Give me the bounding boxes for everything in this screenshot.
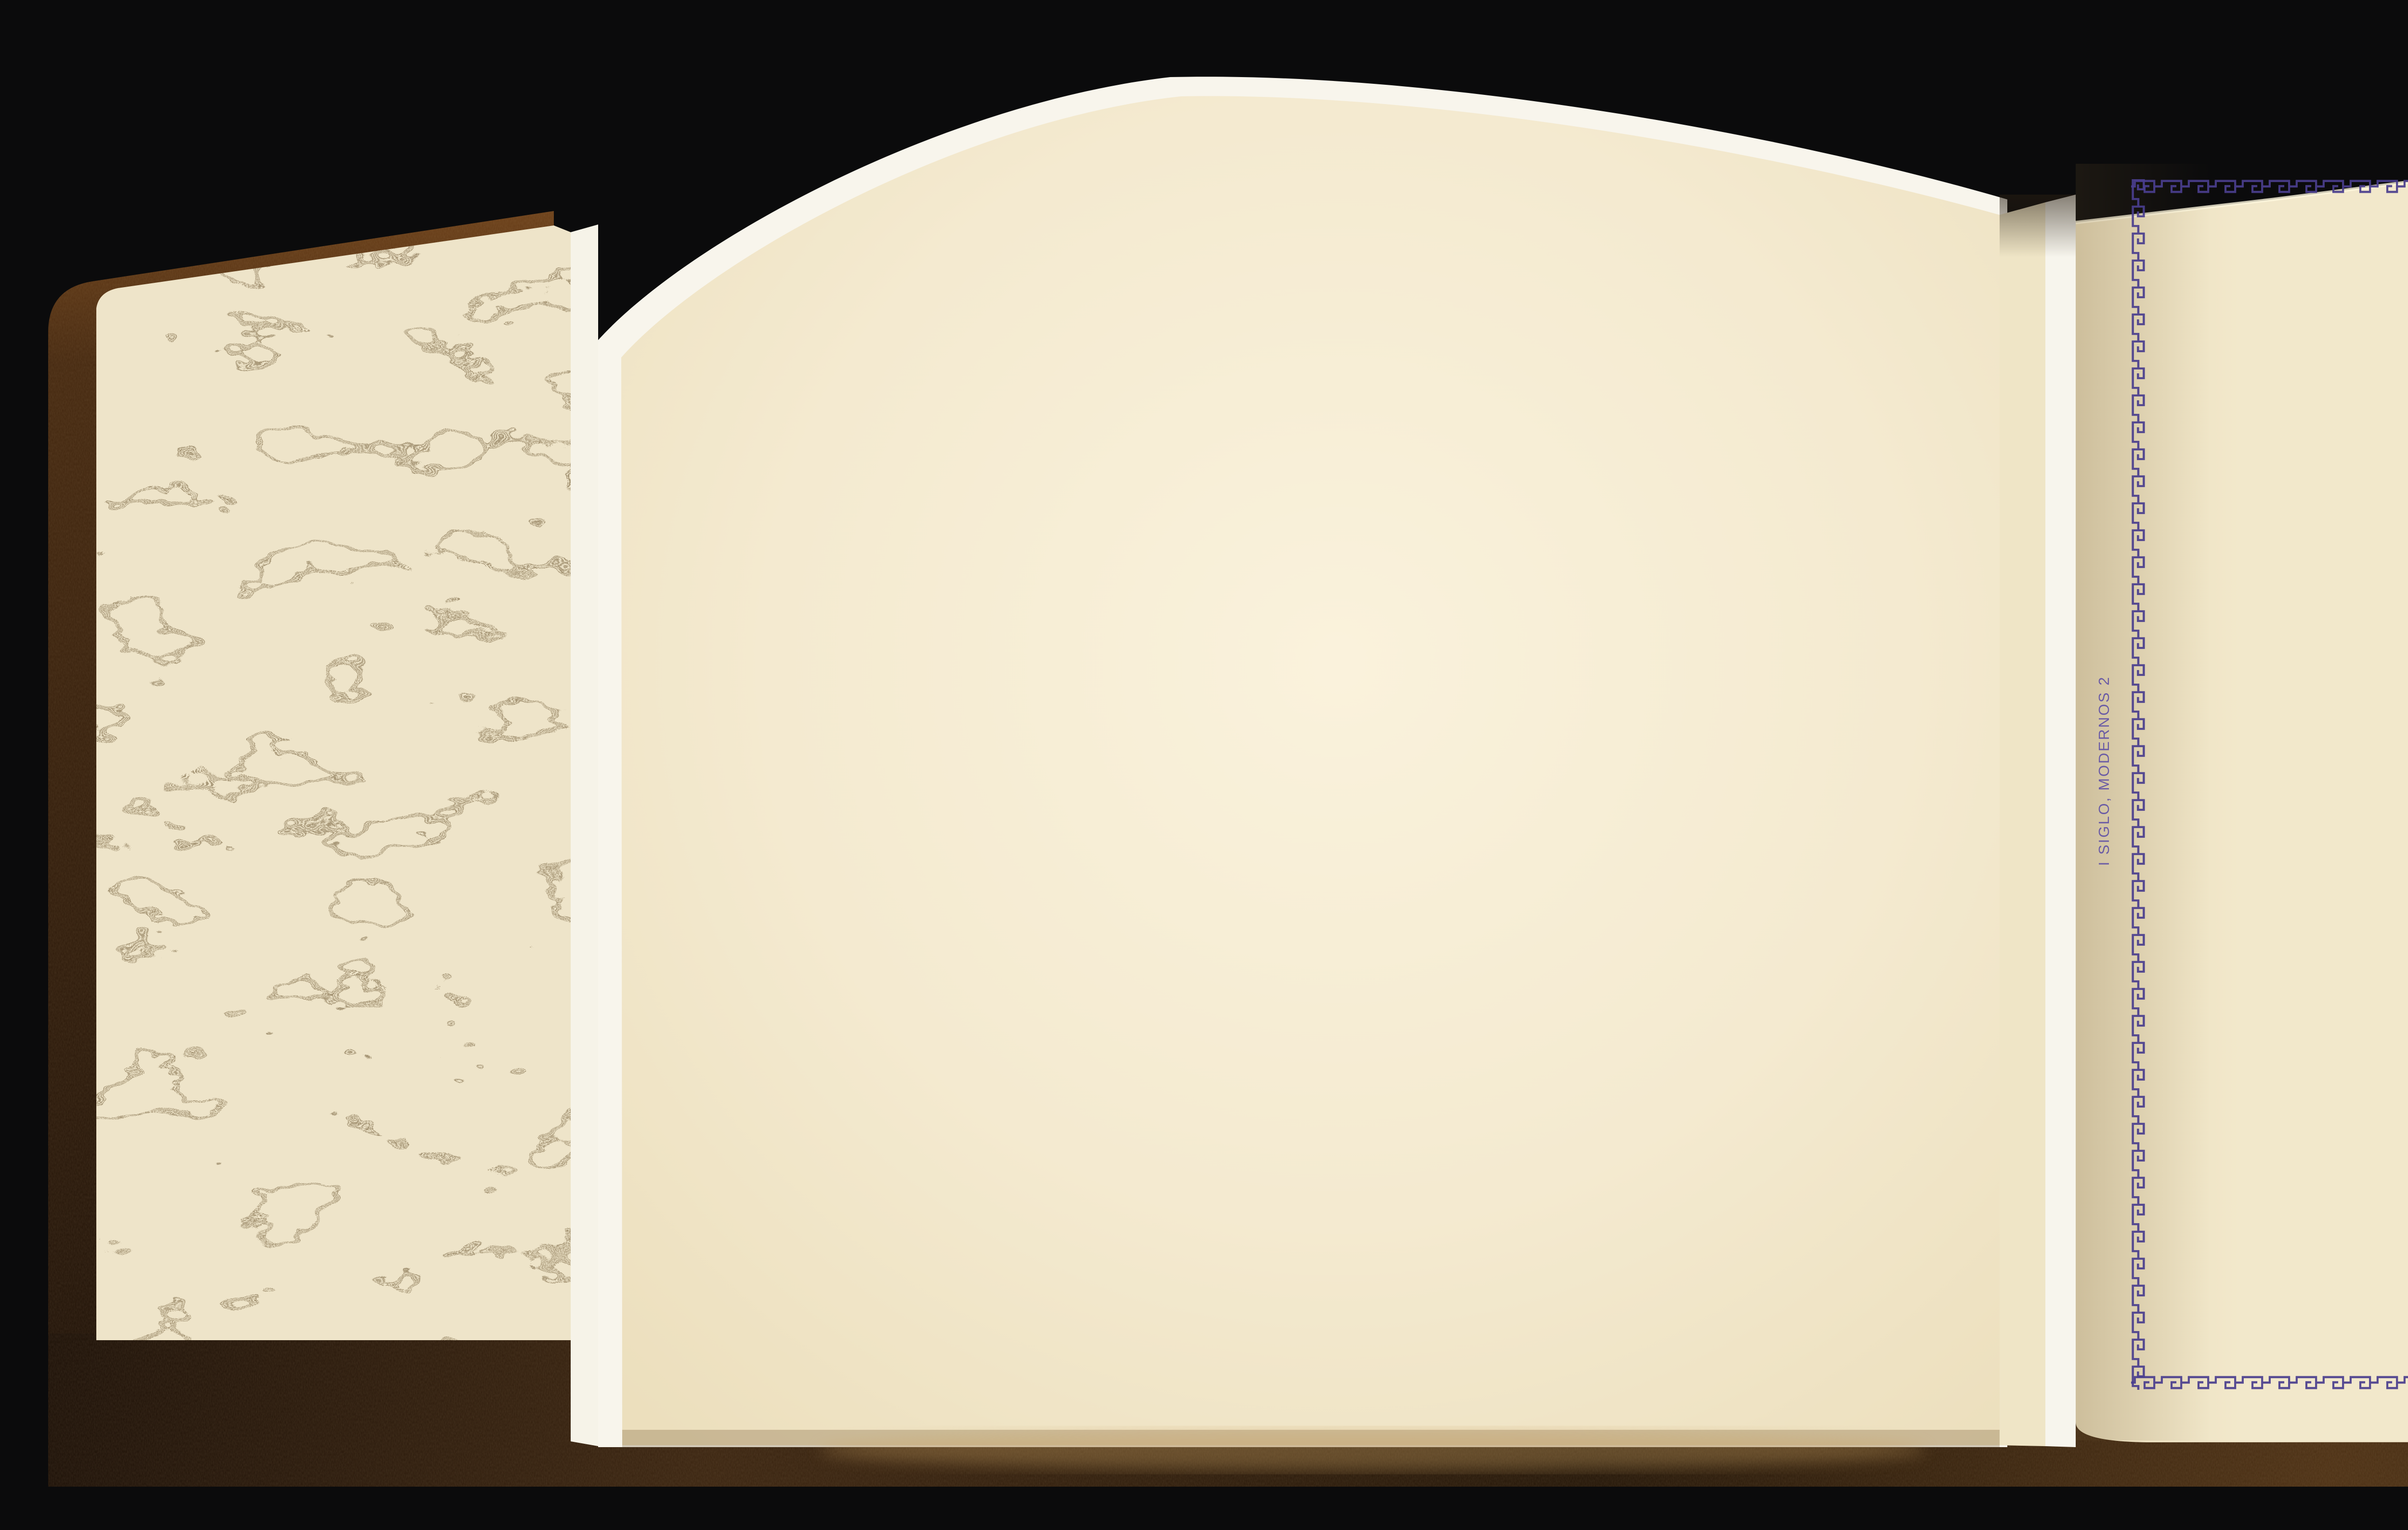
photo-of-open-stamp-album: ESPAÑA 1897, Cifra. Impuesto de guerra. … [0,0,2408,1530]
album-scene [0,0,2408,1530]
margin-series-note: I SIGLO, MODERNOS 2 [2095,665,2117,877]
hinge-top-shadow [2000,195,2076,257]
frame-border-top-left [2131,179,2408,194]
page-edge-sliver [571,224,598,1446]
blank-interleaf-page [621,96,2000,1445]
marbling-swirl-pattern [92,217,578,1346]
leather-bottom-sheen [819,1430,1926,1470]
hinge-linen-strip [2045,195,2076,1447]
frame-border-left [2131,179,2146,1390]
hinge-cream-tab [2000,202,2045,1446]
frame-border-bottom [2131,1375,2408,1390]
